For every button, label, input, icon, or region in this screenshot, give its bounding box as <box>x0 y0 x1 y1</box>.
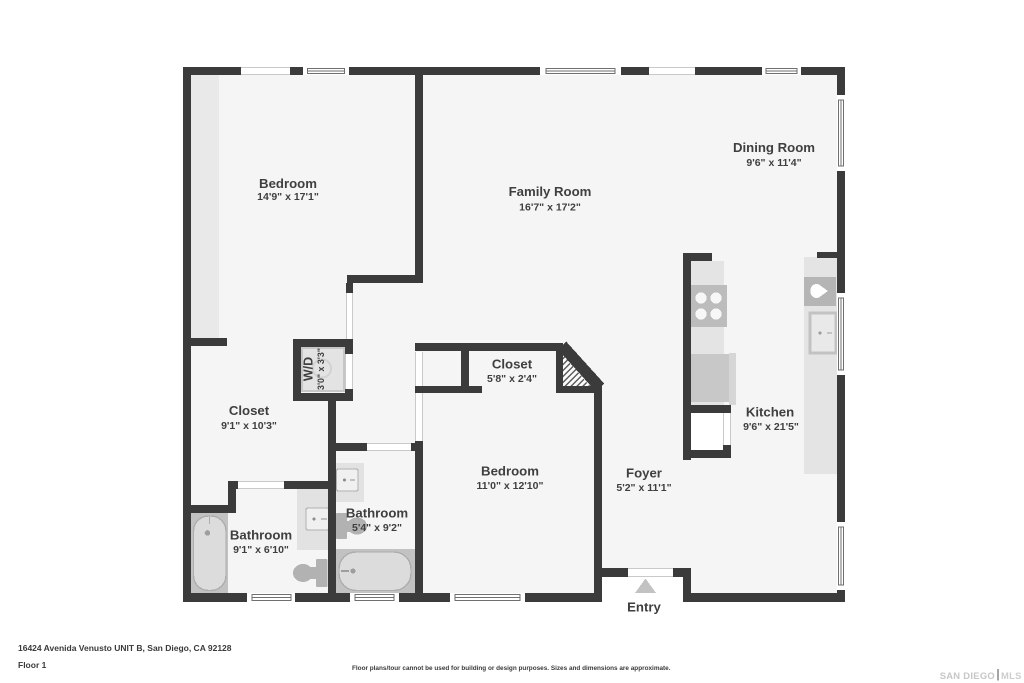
svg-text:MLS: MLS <box>1001 670 1022 681</box>
svg-text:14'9" x 17'1": 14'9" x 17'1" <box>257 191 319 203</box>
svg-text:9'6" x 11'4": 9'6" x 11'4" <box>746 157 801 169</box>
svg-text:Floor 1: Floor 1 <box>18 660 47 670</box>
svg-text:5'4" x 9'2": 5'4" x 9'2" <box>352 522 402 534</box>
svg-text:Dining Room: Dining Room <box>733 140 815 155</box>
svg-text:Closet: Closet <box>229 403 270 418</box>
svg-text:Foyer: Foyer <box>626 466 662 481</box>
svg-text:W/D: W/D <box>302 357 316 381</box>
svg-text:9'6" x 21'5": 9'6" x 21'5" <box>743 421 799 433</box>
svg-text:Floor plans/tour cannot be use: Floor plans/tour cannot be used for buil… <box>352 665 671 672</box>
svg-text:16424 Avenida Venusto UNIT B,: 16424 Avenida Venusto UNIT B, San Diego,… <box>18 643 232 653</box>
svg-text:11'0" x 12'10": 11'0" x 12'10" <box>477 480 544 492</box>
svg-text:Bathroom: Bathroom <box>346 506 408 521</box>
svg-text:Bathroom: Bathroom <box>230 528 292 543</box>
svg-text:Closet: Closet <box>492 357 533 372</box>
svg-text:Bedroom: Bedroom <box>481 464 539 479</box>
svg-text:Bedroom: Bedroom <box>259 176 317 191</box>
svg-text:9'1" x 6'10": 9'1" x 6'10" <box>233 544 289 556</box>
svg-text:16'7" x 17'2": 16'7" x 17'2" <box>519 202 581 214</box>
svg-text:Kitchen: Kitchen <box>746 405 794 420</box>
svg-text:5'2" x 11'1": 5'2" x 11'1" <box>616 482 671 494</box>
svg-text:Entry: Entry <box>627 600 661 615</box>
svg-text:9'1" x 10'3": 9'1" x 10'3" <box>221 420 277 432</box>
svg-text:SAN DIEGO: SAN DIEGO <box>940 670 995 681</box>
svg-text:5'8" x 2'4": 5'8" x 2'4" <box>487 373 537 385</box>
svg-text:Family Room: Family Room <box>509 184 592 199</box>
svg-text:3'0" x 3'3": 3'0" x 3'3" <box>316 348 326 390</box>
